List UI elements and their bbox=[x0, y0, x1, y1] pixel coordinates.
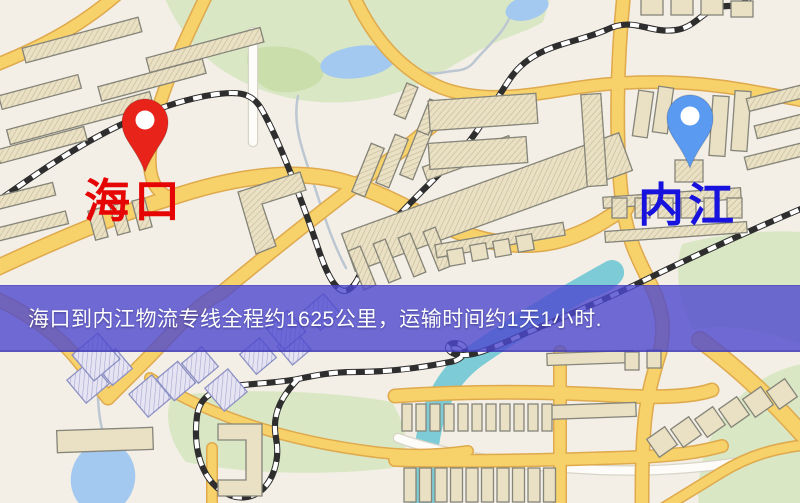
building bbox=[500, 404, 510, 431]
destination-city-label: 内江 bbox=[638, 182, 738, 228]
building bbox=[528, 468, 540, 502]
building bbox=[470, 243, 489, 262]
route-info-banner: 海口到内江物流专线全程约1625公里，运输时间约1天1小时. bbox=[0, 285, 800, 352]
building bbox=[435, 468, 447, 502]
building bbox=[458, 404, 468, 431]
building bbox=[731, 1, 753, 17]
building bbox=[466, 468, 478, 502]
route-info-text: 海口到内江物流专线全程约1625公里，运输时间约1天1小时. bbox=[28, 303, 602, 333]
building bbox=[528, 404, 538, 431]
building bbox=[493, 239, 512, 258]
building bbox=[430, 404, 440, 431]
building bbox=[701, 0, 723, 15]
building bbox=[451, 468, 463, 502]
building bbox=[547, 351, 633, 366]
building bbox=[472, 404, 482, 431]
map-canvas[interactable] bbox=[0, 0, 800, 503]
building bbox=[497, 468, 509, 502]
building bbox=[641, 0, 663, 15]
building bbox=[513, 468, 525, 502]
map-screenshot: 海口 内江 海口到内江物流专线全程约1625公里，运输时间约1天1小时. bbox=[0, 0, 800, 503]
origin-city-label: 海口 bbox=[84, 178, 184, 224]
building bbox=[482, 468, 494, 502]
building bbox=[486, 404, 496, 431]
building bbox=[57, 427, 154, 452]
building bbox=[647, 350, 661, 368]
building bbox=[544, 468, 556, 502]
building bbox=[416, 404, 426, 431]
building bbox=[542, 404, 552, 431]
building bbox=[612, 198, 627, 218]
building bbox=[514, 404, 524, 431]
building bbox=[625, 352, 639, 370]
building bbox=[544, 402, 636, 419]
building bbox=[671, 0, 693, 15]
building bbox=[444, 404, 454, 431]
building bbox=[516, 234, 535, 253]
building bbox=[420, 468, 432, 502]
building bbox=[447, 248, 466, 267]
building bbox=[402, 404, 412, 431]
building bbox=[404, 468, 416, 502]
